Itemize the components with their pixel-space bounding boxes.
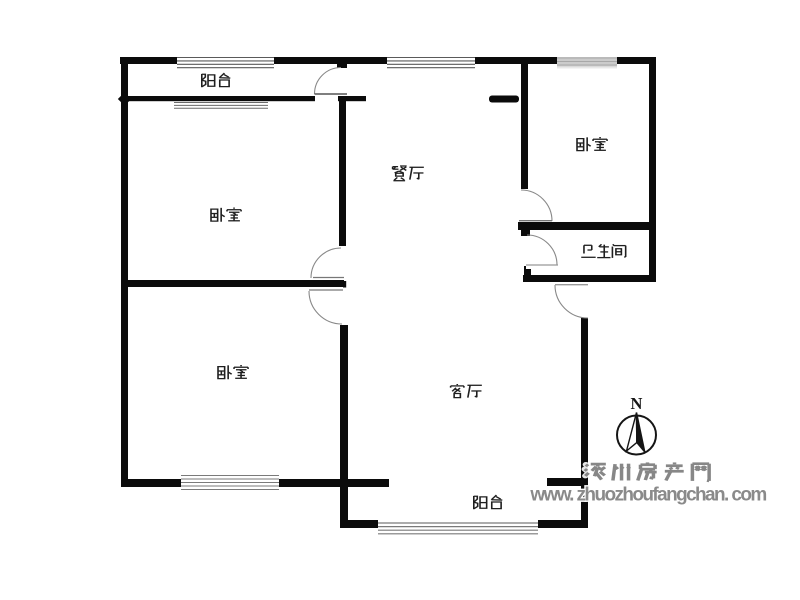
svg-text:www. zhuozhoufangchan. com: www. zhuozhoufangchan. com (529, 485, 766, 506)
svg-text:N: N (631, 394, 643, 413)
